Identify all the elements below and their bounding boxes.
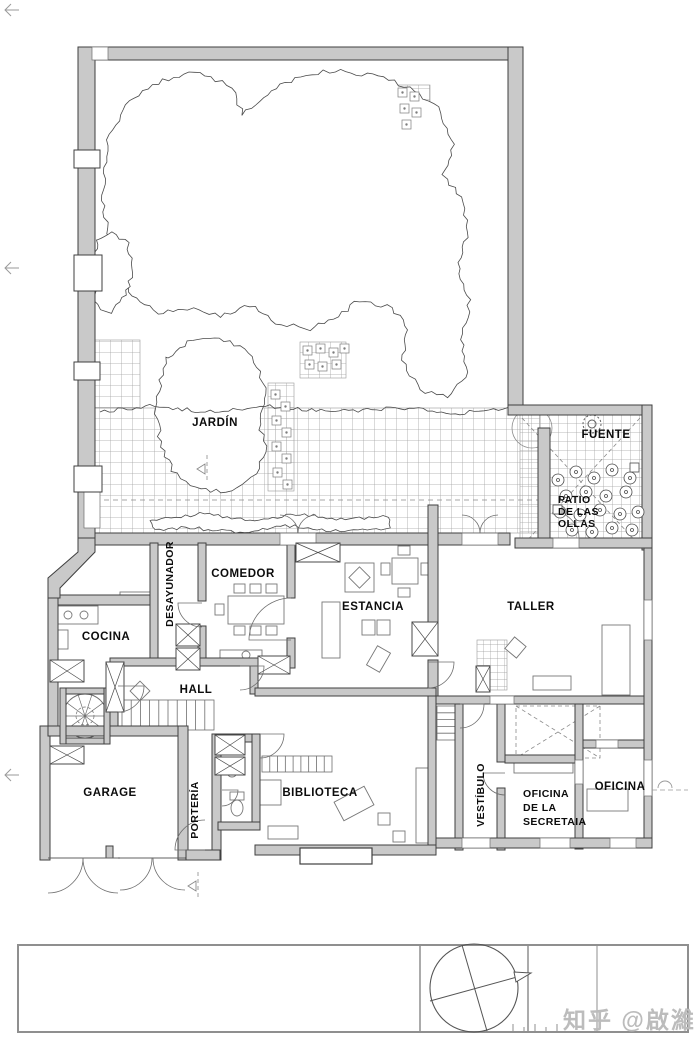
wall-opening [462, 838, 490, 848]
planter-dot [332, 351, 334, 353]
furniture-item [258, 780, 281, 805]
wall-segment [644, 548, 652, 848]
wall-segment [255, 688, 436, 696]
planter-dot [403, 107, 405, 109]
margin-marker-arc [658, 781, 672, 788]
furniture-item [268, 826, 298, 839]
planter-dot [401, 91, 403, 93]
furniture-item [322, 602, 340, 658]
wall-segment [40, 726, 50, 860]
vegetation-outline [155, 338, 267, 493]
wall-segment [497, 704, 505, 762]
pot [588, 472, 600, 484]
furniture-item [381, 563, 390, 575]
wall-segment [48, 538, 95, 598]
wall-segment [428, 505, 438, 637]
wall-opening [490, 696, 514, 704]
room-label-patio-2: DE LAS [558, 506, 599, 518]
furniture-item [378, 813, 390, 825]
wall-segment [436, 696, 652, 704]
door-swing [48, 858, 83, 893]
wall-opening [575, 760, 583, 784]
floor-plan-drawing: JARDÍN FUENTE PATIO DE LAS OLLAS DESAYUN… [0, 0, 700, 1052]
planter-dot [285, 457, 287, 459]
stair-flight [262, 756, 332, 772]
wall-segment [505, 755, 583, 763]
title-block: 知乎 @啟濰 [18, 944, 696, 1033]
wall-pilaster [74, 466, 102, 492]
room-label-comedor: COMEDOR [211, 568, 275, 580]
planter-dot [335, 363, 337, 365]
door-swing [153, 858, 185, 890]
furniture-item [266, 626, 277, 635]
furniture-item [362, 620, 375, 635]
pot [600, 490, 612, 502]
furniture-item [215, 604, 224, 615]
wall-segment [428, 696, 436, 854]
furniture-item [228, 596, 284, 624]
room-label-porteria: PORTERÍA [188, 781, 201, 838]
planter-dot [319, 347, 321, 349]
furniture-item [392, 558, 418, 584]
wall-segment [508, 405, 652, 415]
room-label-secretaria-2: DE LA [523, 802, 557, 814]
door-swing [460, 704, 484, 728]
furniture-item [130, 681, 150, 701]
furniture-item [398, 546, 410, 555]
pot [624, 472, 636, 484]
furniture-item [416, 768, 429, 843]
furniture-item [602, 625, 630, 695]
wall-pilaster [74, 150, 100, 168]
vegetation-outline [102, 69, 471, 397]
furniture-item [250, 626, 261, 635]
furniture-item [398, 588, 410, 597]
pot [632, 506, 644, 518]
wall-segment [48, 726, 186, 736]
room-label-fuente: FUENTE [582, 429, 631, 441]
room-label-desayunador: DESAYUNADOR [164, 541, 176, 627]
bay-window [300, 848, 372, 864]
planter-dot [343, 347, 345, 349]
pot [620, 486, 632, 498]
wall-opening [92, 47, 108, 60]
pot [606, 464, 618, 476]
wall-segment [150, 543, 158, 658]
pot [626, 524, 638, 536]
planter-dot [405, 123, 407, 125]
furniture-item [234, 584, 245, 593]
room-label-estancia: ESTANCIA [342, 601, 404, 613]
wall-segment [55, 595, 152, 605]
pot [606, 522, 618, 534]
wall-segment [60, 738, 110, 744]
wall-segment [178, 726, 188, 860]
furniture-item [505, 637, 526, 658]
planter-dot [275, 419, 277, 421]
planter-dot [285, 431, 287, 433]
pot [614, 508, 626, 520]
room-label-biblioteca: BIBLIOTECA [282, 787, 357, 799]
furniture-item [367, 646, 391, 673]
wall-segment [78, 47, 95, 538]
room-label-secretaria-3: SECRETAIA [523, 816, 587, 828]
wall-segment [198, 543, 206, 601]
room-label-patio-3: OLLAS [558, 518, 596, 530]
wall-pilaster [74, 255, 102, 291]
wall-segment [538, 428, 550, 538]
wall-segment [515, 538, 652, 548]
wall-opening [462, 533, 498, 545]
wall-segment [642, 405, 652, 550]
wall-segment [252, 734, 260, 830]
furniture-item [533, 676, 571, 690]
planter-dot [275, 445, 277, 447]
pot [570, 466, 582, 478]
datum-flag [188, 881, 196, 891]
planter-dot [274, 393, 276, 395]
wall-segment [508, 47, 523, 412]
planter-dot [286, 483, 288, 485]
toilet [231, 800, 243, 816]
wall-segment [60, 688, 66, 744]
planter-dot [284, 405, 286, 407]
door-swing [260, 734, 284, 758]
wall-segment [455, 704, 463, 850]
room-label-patio-1: PATIO [558, 494, 591, 506]
wall-segment [218, 822, 260, 830]
watermark-text: 知乎 @啟濰 [563, 1007, 696, 1033]
planter-dot [321, 365, 323, 367]
furniture-item [234, 626, 245, 635]
wall-opening [610, 838, 636, 848]
wall-segment [287, 543, 295, 598]
wall-segment [186, 850, 220, 860]
fixture [64, 611, 72, 619]
door-swing [178, 603, 202, 627]
room-label-oficina: OFICINA [595, 781, 646, 793]
room-label-jardin: JARDÍN [192, 416, 238, 429]
door-swing [120, 858, 152, 890]
wall-opening [540, 838, 570, 848]
room-label-hall: HALL [180, 684, 213, 696]
planter-dot [306, 349, 308, 351]
wall-pilaster [74, 362, 100, 380]
wall-segment [78, 47, 523, 60]
furniture-item [377, 620, 390, 635]
room-label-cocina: COCINA [82, 631, 130, 643]
pot-square [630, 463, 639, 472]
furniture-item [393, 831, 405, 842]
door-swing [83, 858, 118, 893]
room-label-taller: TALLER [507, 601, 555, 613]
wall-opening [644, 600, 652, 640]
wall-opening [553, 538, 579, 548]
wall-segment [60, 688, 110, 694]
planter-dot [413, 95, 415, 97]
planter-dot [415, 111, 417, 113]
garage-post [106, 846, 113, 858]
planter-dot [276, 471, 278, 473]
furniture-item [266, 584, 277, 593]
fixture [80, 611, 88, 619]
planter-dot [308, 363, 310, 365]
furniture-item [250, 584, 261, 593]
room-label-garage: GARAGE [83, 787, 136, 799]
tiled-area [95, 340, 140, 408]
room-label-vestibulo: VESTÍBULO [474, 763, 487, 827]
wall-opening [596, 740, 618, 748]
floor-plan-sheet: JARDÍN FUENTE PATIO DE LAS OLLAS DESAYUN… [0, 0, 700, 1052]
room-label-secretaria-1: OFICINA [523, 788, 569, 800]
pot [552, 474, 564, 486]
